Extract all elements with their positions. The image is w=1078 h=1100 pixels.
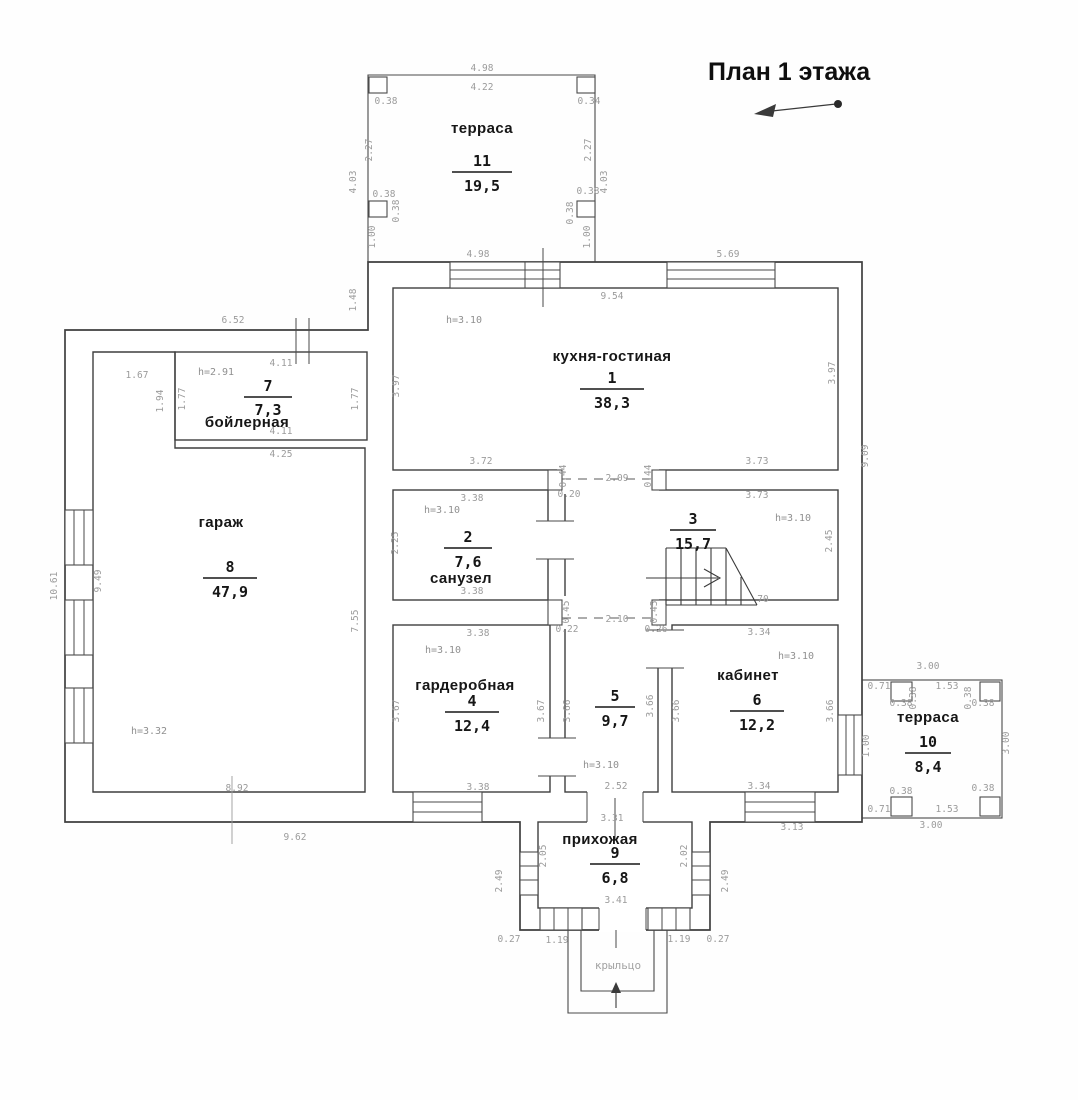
- terrace-post: [577, 77, 595, 93]
- dimension-label: 0.44: [643, 464, 654, 487]
- dimension-label: 2.27: [364, 139, 375, 162]
- dimension-label: 1.77: [177, 388, 188, 411]
- ceiling-height-label: h=3.32: [131, 726, 167, 737]
- room-area: 47,9: [212, 583, 248, 601]
- window-hallway-east: [692, 852, 710, 895]
- dimension-label: 2.27: [583, 139, 594, 162]
- dimension-label: 1.19: [668, 934, 691, 945]
- porch: крыльцо: [568, 930, 667, 1013]
- dimension-label: 4.11: [270, 358, 293, 369]
- dimension-label: 0.20: [558, 489, 581, 500]
- dimension-label: 0.26: [645, 624, 668, 635]
- window-kitchen-right: [667, 262, 775, 288]
- dimension-label: 4.03: [348, 171, 359, 194]
- dimension-label: 0.38: [908, 686, 919, 709]
- room-name: терраса: [451, 120, 513, 137]
- dimension-label: 3.66: [825, 699, 836, 722]
- dimension-label: 3.34: [748, 781, 771, 792]
- dimension-label: 3.34: [748, 627, 771, 638]
- dimension-label: 4.98: [467, 249, 490, 260]
- terrace-post: [577, 201, 595, 217]
- dimension-label: 3.00: [917, 661, 940, 672]
- dimension-label: 0.38: [890, 786, 913, 797]
- dimension-label: 3.66: [645, 694, 656, 717]
- dimension-label: 9.54: [601, 291, 624, 302]
- dimension-label: 1.77: [350, 388, 361, 411]
- ceiling-height-label: h=3.10: [425, 645, 461, 656]
- dimension-label: 5.69: [717, 249, 740, 260]
- dimension-label: 0.34: [578, 96, 601, 107]
- room-name: гараж: [199, 514, 244, 531]
- dimension-label: 2.02: [679, 845, 690, 868]
- room-name: гардеробная: [415, 677, 514, 694]
- dimension-label: 2.52: [605, 781, 628, 792]
- dimension-label: 3.73: [746, 456, 769, 467]
- room-number: 4: [467, 692, 476, 710]
- dimension-label: 0.45: [649, 601, 660, 624]
- dimension-label: 0.38: [972, 698, 995, 709]
- dimension-label: 2.10: [606, 614, 629, 625]
- dimension-label: 0.44: [558, 464, 569, 487]
- dimension-label: 6.52: [222, 315, 245, 326]
- floor-plan-page: План 1 этажа: [0, 0, 1078, 1100]
- dimension-label: 2.49: [720, 869, 731, 892]
- dimension-label: 0.22: [556, 624, 579, 635]
- terrace-post: [369, 77, 387, 93]
- dimension-label: 0.38: [373, 189, 396, 200]
- porch-label: крыльцо: [595, 959, 641, 972]
- dimension-label: 0.27: [707, 934, 730, 945]
- dimension-label: 7.55: [350, 610, 361, 633]
- dimension-label: 1.53: [936, 804, 959, 815]
- dimension-label: 8.92: [226, 783, 249, 794]
- window-garage-3: [65, 688, 93, 743]
- ceiling-height-label: h=3.10: [424, 505, 460, 516]
- room-area: 38,3: [594, 394, 630, 412]
- room-number: 5: [610, 687, 619, 705]
- window-garage-2: [65, 600, 93, 655]
- dimension-label: 3.38: [467, 628, 490, 639]
- dimension-label: 3.31: [601, 813, 624, 824]
- room-area: 9,7: [601, 712, 628, 730]
- dimension-label: 3.97: [391, 375, 402, 398]
- dimension-label: 3.66: [671, 699, 682, 722]
- dimension-label: 2.49: [494, 869, 505, 892]
- room-name: санузел: [430, 570, 492, 587]
- dimension-label: 0.38: [565, 201, 576, 224]
- ceiling-height-label: h=3.10: [446, 315, 482, 326]
- dimension-label: 0.45: [561, 601, 572, 624]
- dimension-label: 3.38: [461, 586, 484, 597]
- room-name: прихожая: [562, 831, 638, 848]
- dimension-label: 3.41: [605, 895, 628, 906]
- dimension-label: 70: [757, 594, 769, 605]
- window-hallway-south-left: [540, 908, 582, 930]
- dimension-label: 0.38: [963, 686, 974, 709]
- room-area: 7,3: [254, 401, 281, 419]
- dimension-label: 0.27: [498, 934, 521, 945]
- north-arrow-icon: [754, 100, 842, 117]
- dimension-label: 2.45: [824, 530, 835, 553]
- dimension-label: 3.67: [536, 700, 547, 723]
- dimension-label: 4.03: [599, 171, 610, 194]
- room-label-11: терраса1119,5: [451, 120, 513, 195]
- dimension-label: 1.67: [126, 370, 149, 381]
- room-name: терраса: [897, 709, 959, 726]
- dimension-label: 0.38: [972, 783, 995, 794]
- room-area: 19,5: [464, 177, 500, 195]
- window-wardrobe-south: [413, 792, 482, 822]
- dimension-label: 3.67: [391, 700, 402, 723]
- room-name: кухня-гостиная: [553, 348, 672, 365]
- room-area: 12,4: [454, 717, 490, 735]
- room-number: 8: [225, 558, 234, 576]
- dimension-label: 2.25: [390, 532, 401, 555]
- dimension-label: 3.00: [1001, 731, 1012, 754]
- window-hallway-west: [520, 852, 538, 895]
- dimension-label: 0.38: [577, 186, 600, 197]
- dimension-label: 0.71: [868, 804, 891, 815]
- room-number: 2: [463, 528, 472, 546]
- dimension-label: 1.00: [367, 225, 378, 248]
- dimension-label: 2.09: [606, 473, 629, 484]
- ceiling-height-label: h=2.91: [198, 367, 234, 378]
- dimension-label: 1.53: [936, 681, 959, 692]
- dimension-label: 3.38: [467, 782, 490, 793]
- entrance-arrow-icon: [611, 982, 621, 1008]
- room-area: 12,2: [739, 716, 775, 734]
- dimension-label: 0.38: [391, 199, 402, 222]
- window-office-east: [838, 715, 862, 775]
- dimension-label: 3.72: [470, 456, 493, 467]
- dimension-label: 1.00: [582, 225, 593, 248]
- ceiling-height-label: h=3.10: [583, 760, 619, 771]
- dimension-label: 3.00: [920, 820, 943, 831]
- dimension-label: 9.49: [93, 569, 104, 592]
- room-number: 3: [688, 510, 697, 528]
- room-area: 6,8: [601, 869, 628, 887]
- floor-plan-drawing: План 1 этажа: [0, 0, 1078, 1100]
- dimension-label: 3.73: [746, 490, 769, 501]
- dimension-label: 1.00: [861, 734, 872, 757]
- room-area: 7,6: [454, 553, 481, 571]
- room-number: 9: [610, 844, 619, 862]
- window-hallway-south-right: [648, 908, 690, 930]
- room-area: 15,7: [675, 535, 711, 553]
- dimension-label: 1.94: [155, 389, 166, 412]
- dimension-label: 4.25: [270, 449, 293, 460]
- dimension-label: 1.48: [348, 288, 359, 311]
- room-name: кабинет: [717, 667, 779, 684]
- dimension-label: 10.61: [49, 571, 60, 600]
- terrace-post: [891, 797, 912, 816]
- dimension-label: 9.09: [860, 444, 871, 467]
- room-number: 11: [473, 152, 491, 170]
- dimension-label: 4.22: [471, 82, 494, 93]
- dimension-label: 4.98: [471, 63, 494, 74]
- dimension-label: 1.19: [546, 935, 569, 946]
- room-number: 6: [752, 691, 761, 709]
- ceiling-height-label: h=3.10: [775, 513, 811, 524]
- dimension-label: 9.62: [284, 832, 307, 843]
- dimension-label: 3.13: [781, 822, 804, 833]
- dimension-label: 0.38: [375, 96, 398, 107]
- door-entrance: [599, 904, 646, 948]
- terrace-post: [369, 201, 387, 217]
- room-area: 8,4: [914, 758, 941, 776]
- page-title: План 1 этажа: [708, 58, 871, 86]
- terrace-post: [980, 797, 1000, 816]
- room-number: 10: [919, 733, 937, 751]
- dimension-label: 3.97: [827, 362, 838, 385]
- window-garage-1: [65, 510, 93, 565]
- dimension-label: 2.05: [538, 845, 549, 868]
- window-office-south: [745, 792, 815, 822]
- dimension-label: 3.38: [461, 493, 484, 504]
- room-number: 7: [263, 377, 272, 395]
- room-number: 1: [607, 369, 616, 387]
- dimension-label: 3.66: [562, 699, 573, 722]
- ceiling-height-label: h=3.10: [778, 651, 814, 662]
- dimension-label: 0.71: [868, 681, 891, 692]
- room-label-10: терраса108,4: [897, 709, 959, 776]
